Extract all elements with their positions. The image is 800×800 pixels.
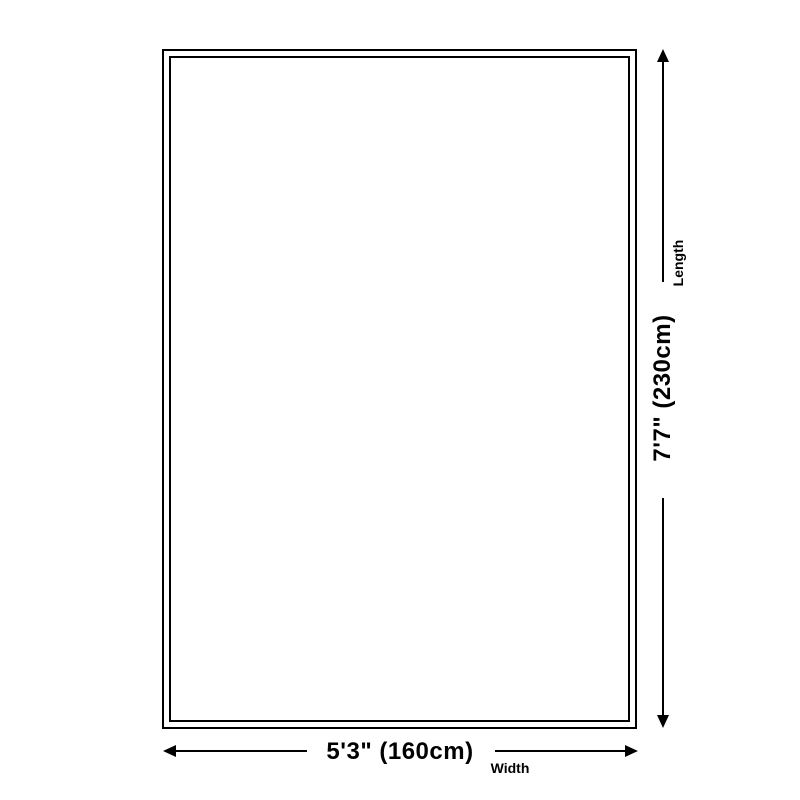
width-dimension-line-left <box>175 750 307 752</box>
width-dimension-line-right <box>495 750 625 752</box>
length-dimension-line-bottom <box>662 498 664 716</box>
rug-size-diagram: Length 7'7" (230cm) 5'3" (160cm) Width <box>0 0 800 800</box>
width-value: 5'3" (160cm) <box>326 738 473 766</box>
length-label: Length <box>670 240 686 287</box>
length-value: 7'7" (230cm) <box>649 314 677 461</box>
rug-inner-outline <box>169 56 630 722</box>
arrow-down-icon <box>657 715 669 728</box>
rug-outline <box>162 49 637 729</box>
length-dimension-line-top <box>662 59 664 282</box>
width-label: Width <box>491 760 530 776</box>
arrow-right-icon <box>625 745 638 757</box>
